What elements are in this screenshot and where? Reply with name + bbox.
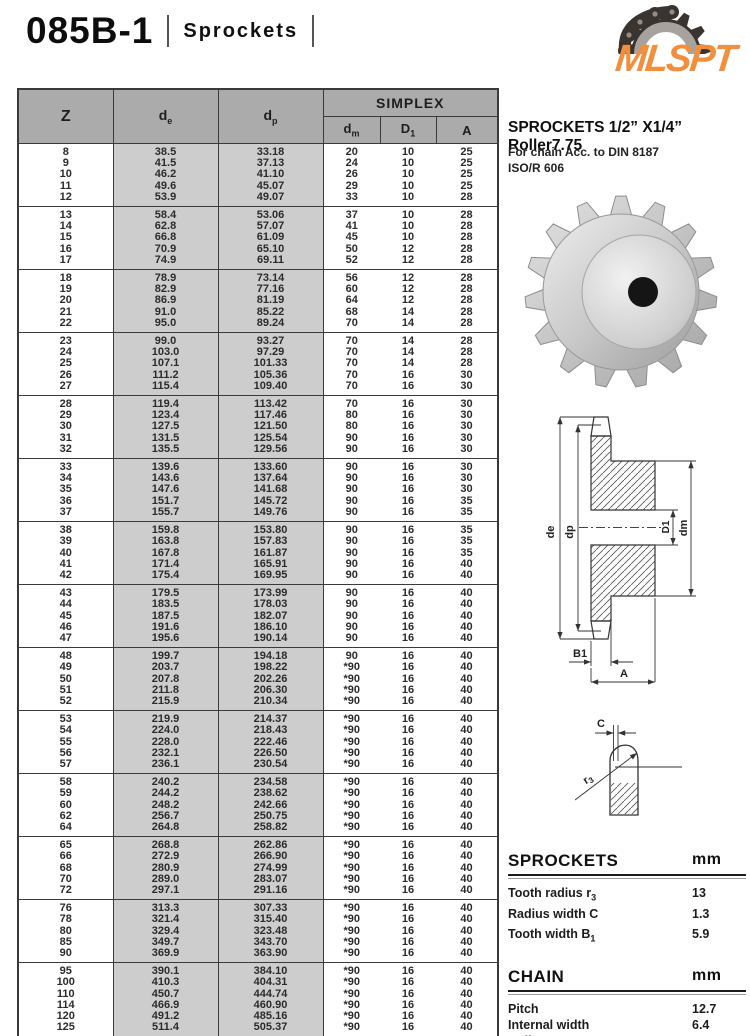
z-cell: 100: [18, 977, 113, 988]
de-cell: 410.3: [113, 977, 218, 988]
dp-cell: 194.18: [218, 648, 323, 663]
z-cell: 39: [18, 536, 113, 547]
d1-cell: 16: [380, 948, 436, 963]
d1-cell: 16: [380, 633, 436, 648]
dp-cell: 89.24: [218, 318, 323, 333]
dm-cell: 90: [323, 570, 380, 585]
a-cell: 28: [436, 192, 498, 207]
table-row: 2086.981.19641228: [18, 295, 498, 306]
table-row: 49203.7198.22*901640: [18, 662, 498, 673]
de-cell: 199.7: [113, 648, 218, 663]
d1-cell: 16: [380, 585, 436, 600]
dp-cell: 53.06: [218, 207, 323, 222]
dm-cell: *90: [323, 948, 380, 963]
z-cell: 125: [18, 1022, 113, 1036]
dm-cell: 90: [323, 444, 380, 459]
dm-cell: 20: [323, 144, 380, 159]
spec-section: SPROCKETS mm Tooth radius r3 13 Radius w…: [508, 851, 746, 1036]
dm-cell: 90: [323, 633, 380, 648]
spec-value: 6.4: [692, 1017, 746, 1033]
d1-cell: 16: [380, 507, 436, 522]
de-cell: 99.0: [113, 333, 218, 348]
d1-cell: 16: [380, 759, 436, 774]
dm-cell: *90: [323, 1022, 380, 1036]
dp-cell: 238.62: [218, 788, 323, 799]
spec-value: 5.9: [692, 926, 746, 947]
table-row: 42175.4169.95901640: [18, 570, 498, 585]
dm-cell: 90: [323, 484, 380, 495]
de-cell: 135.5: [113, 444, 218, 459]
table-row: 72297.1291.16*901640: [18, 885, 498, 900]
catalog-page: 085B-1 Sprockets MLSPT: [0, 0, 750, 1036]
sprocket-dimension-table: Z de dp SIMPLEX dm D1 A 838.533.18201025…: [17, 88, 499, 1036]
dm-cell: 90: [323, 522, 380, 537]
dp-cell: 266.90: [218, 851, 323, 862]
dm-cell: 70: [323, 318, 380, 333]
a-cell: 28: [436, 270, 498, 285]
dp-cell: 141.68: [218, 484, 323, 495]
d1-cell: 16: [380, 774, 436, 789]
de-cell: 86.9: [113, 295, 218, 306]
row-group: 33139.6133.6090163034143.6137.6490163035…: [18, 459, 498, 522]
a-cell: 40: [436, 788, 498, 799]
a-cell: 40: [436, 900, 498, 915]
d1-cell: 10: [380, 232, 436, 243]
dm-cell: 80: [323, 421, 380, 432]
dm-cell: 70: [323, 396, 380, 411]
spec-value: 12.7: [692, 1001, 746, 1017]
de-cell: 183.5: [113, 599, 218, 610]
dm-cell: *90: [323, 914, 380, 925]
d1-cell: 16: [380, 711, 436, 726]
d1-cell: 16: [380, 696, 436, 711]
dim-label-dp: dp: [564, 525, 576, 539]
table-row: 2295.089.24701428: [18, 318, 498, 333]
d1-cell: 14: [380, 358, 436, 369]
spec-value: 13: [692, 885, 746, 906]
a-cell: 30: [436, 484, 498, 495]
table-row: 76313.3307.33*901640: [18, 900, 498, 915]
row-group: 43179.5173.9990164044183.5178.0390164045…: [18, 585, 498, 648]
table-row: 2399.093.27701428: [18, 333, 498, 348]
dp-cell: 109.40: [218, 381, 323, 396]
dp-cell: 33.18: [218, 144, 323, 159]
z-cell: 10: [18, 169, 113, 180]
spec-heading: CHAIN: [508, 967, 692, 987]
dm-cell: *90: [323, 696, 380, 711]
d1-cell: 16: [380, 522, 436, 537]
dim-label-c: C: [597, 718, 605, 730]
table-row: 100410.3404.31*901640: [18, 977, 498, 988]
table-row: 38159.8153.80901635: [18, 522, 498, 537]
dm-cell: 52: [323, 255, 380, 270]
sprockets-spec: SPROCKETS mm Tooth radius r3 13 Radius w…: [508, 851, 746, 947]
z-cell: 37: [18, 507, 113, 522]
dm-cell: *90: [323, 774, 380, 789]
z-cell: 33: [18, 459, 113, 474]
table-row: 57236.1230.54*901640: [18, 759, 498, 774]
z-cell: 65: [18, 837, 113, 852]
z-cell: 47: [18, 633, 113, 648]
de-cell: 195.6: [113, 633, 218, 648]
de-cell: 163.8: [113, 536, 218, 547]
dm-cell: 90: [323, 599, 380, 610]
dp-cell: 198.22: [218, 662, 323, 673]
dp-cell: 61.09: [218, 232, 323, 243]
z-cell: 59: [18, 788, 113, 799]
rule-line: [508, 990, 746, 995]
dm-cell: *90: [323, 885, 380, 900]
dm-cell: 70: [323, 381, 380, 396]
dp-cell: 384.10: [218, 963, 323, 978]
page-subtitle: Sprockets: [183, 20, 298, 43]
de-cell: 215.9: [113, 696, 218, 711]
table-row: 30127.5121.50801630: [18, 421, 498, 432]
z-cell: 35: [18, 484, 113, 495]
divider: [312, 15, 314, 47]
z-cell: 53: [18, 711, 113, 726]
dm-cell: 64: [323, 295, 380, 306]
d1-cell: 16: [380, 914, 436, 925]
d1-cell: 16: [380, 648, 436, 663]
z-cell: 44: [18, 599, 113, 610]
z-cell: 32: [18, 444, 113, 459]
de-cell: 272.9: [113, 851, 218, 862]
d1-cell: 16: [380, 396, 436, 411]
a-cell: 35: [436, 536, 498, 547]
dm-cell: *90: [323, 977, 380, 988]
z-cell: 8: [18, 144, 113, 159]
table-row: 58240.2234.58*901640: [18, 774, 498, 789]
a-cell: 30: [436, 381, 498, 396]
z-cell: 57: [18, 759, 113, 774]
z-cell: 95: [18, 963, 113, 978]
table-row: 25107.1101.33701428: [18, 358, 498, 369]
dm-cell: *90: [323, 900, 380, 915]
table-row: 54224.0218.43*901640: [18, 725, 498, 736]
de-cell: 224.0: [113, 725, 218, 736]
table-row: 37155.7149.76901635: [18, 507, 498, 522]
a-cell: 40: [436, 963, 498, 978]
d1-cell: 12: [380, 255, 436, 270]
technical-drawing: de dp D1 dm B1 A: [533, 410, 748, 702]
dp-cell: 315.40: [218, 914, 323, 925]
page-header: 085B-1 Sprockets: [26, 10, 328, 52]
dm-cell: *90: [323, 851, 380, 862]
z-cell: 58: [18, 774, 113, 789]
de-cell: 53.9: [113, 192, 218, 207]
table-row: 27115.4109.40701630: [18, 381, 498, 396]
bore-hole: [628, 277, 658, 307]
a-cell: 40: [436, 774, 498, 789]
d1-cell: 16: [380, 977, 436, 988]
table-header: Z de dp SIMPLEX dm D1 A: [18, 89, 498, 144]
de-cell: 240.2: [113, 774, 218, 789]
de-cell: 139.6: [113, 459, 218, 474]
dp-cell: 133.60: [218, 459, 323, 474]
z-cell: 48: [18, 648, 113, 663]
a-cell: 30: [436, 421, 498, 432]
dm-cell: 56: [323, 270, 380, 285]
d1-cell: 16: [380, 599, 436, 610]
spec-heading: SPROCKETS: [508, 851, 692, 871]
de-cell: 115.4: [113, 381, 218, 396]
z-cell: 76: [18, 900, 113, 915]
d1-cell: 16: [380, 900, 436, 915]
spec-row: Pitch 12.7: [508, 1001, 746, 1017]
de-cell: 159.8: [113, 522, 218, 537]
divider: [167, 15, 169, 47]
sprocket-photo: [513, 190, 748, 398]
spec-value: 7.75: [692, 1033, 746, 1036]
spec-value: 1.3: [692, 906, 746, 927]
table-row: 1046.241.10261025: [18, 169, 498, 180]
a-cell: 40: [436, 633, 498, 648]
d1-cell: 16: [380, 1022, 436, 1036]
de-cell: 147.6: [113, 484, 218, 495]
table-row: 48199.7194.18901640: [18, 648, 498, 663]
d1-cell: 16: [380, 837, 436, 852]
de-cell: 155.7: [113, 507, 218, 522]
row-group: 38159.8153.8090163539163.8157.8390163540…: [18, 522, 498, 585]
dp-cell: 258.82: [218, 822, 323, 837]
spec-row: Tooth width B1 5.9: [508, 926, 746, 947]
de-cell: 313.3: [113, 900, 218, 915]
a-cell: 40: [436, 851, 498, 862]
z-cell: 18: [18, 270, 113, 285]
dp-cell: 307.33: [218, 900, 323, 915]
a-cell: 40: [436, 585, 498, 600]
d1-cell: 12: [380, 295, 436, 306]
d1-cell: 16: [380, 536, 436, 547]
z-cell: 52: [18, 696, 113, 711]
tooth-profile-drawing: C r3: [575, 703, 725, 845]
a-cell: 40: [436, 662, 498, 673]
d1-cell: 16: [380, 963, 436, 978]
z-cell: 22: [18, 318, 113, 333]
table-row: 44183.5178.03901640: [18, 599, 498, 610]
dm-cell: 70: [323, 358, 380, 369]
col-header-z: Z: [18, 89, 113, 144]
de-cell: 203.7: [113, 662, 218, 673]
chain-spec-header: CHAIN mm: [508, 967, 746, 987]
a-cell: 40: [436, 914, 498, 925]
z-cell: 43: [18, 585, 113, 600]
dp-cell: 190.14: [218, 633, 323, 648]
dp-cell: 153.80: [218, 522, 323, 537]
dp-cell: 214.37: [218, 711, 323, 726]
dm-cell: 45: [323, 232, 380, 243]
dm-cell: *90: [323, 725, 380, 736]
d1-cell: 10: [380, 192, 436, 207]
table-row: 1358.453.06371028: [18, 207, 498, 222]
dp-cell: 129.56: [218, 444, 323, 459]
de-cell: 219.9: [113, 711, 218, 726]
table-row: 125511.4505.37*901640: [18, 1022, 498, 1036]
dm-cell: *90: [323, 822, 380, 837]
a-cell: 40: [436, 977, 498, 988]
table-row: 90369.9363.90*901640: [18, 948, 498, 963]
spec-row: Roller Φ 7.75: [508, 1033, 746, 1036]
dp-cell: 93.27: [218, 333, 323, 348]
dp-cell: 41.10: [218, 169, 323, 180]
row-group: 1358.453.063710281462.857.074110281566.8…: [18, 207, 498, 270]
a-cell: 28: [436, 207, 498, 222]
d1-cell: 16: [380, 725, 436, 736]
spec-unit: mm: [692, 851, 746, 871]
table-row: 47195.6190.14901640: [18, 633, 498, 648]
dp-cell: 173.99: [218, 585, 323, 600]
dim-label-b1: B1: [573, 648, 587, 660]
dp-cell: 363.90: [218, 948, 323, 963]
row-group: 58240.2234.58*90164059244.2238.62*901640…: [18, 774, 498, 837]
table-row: 32135.5129.56901630: [18, 444, 498, 459]
de-cell: 264.8: [113, 822, 218, 837]
page-title: 085B-1: [26, 10, 153, 52]
d1-cell: 16: [380, 459, 436, 474]
a-cell: 25: [436, 144, 498, 159]
z-cell: 54: [18, 725, 113, 736]
dm-cell: 70: [323, 333, 380, 348]
d1-cell: 16: [380, 570, 436, 585]
z-cell: 30: [18, 421, 113, 432]
d1-cell: 16: [380, 788, 436, 799]
a-cell: 40: [436, 1022, 498, 1036]
de-cell: 127.5: [113, 421, 218, 432]
a-cell: 40: [436, 648, 498, 663]
table-row: 1566.861.09451028: [18, 232, 498, 243]
dp-cell: 101.33: [218, 358, 323, 369]
de-cell: 58.4: [113, 207, 218, 222]
col-header-dm: dm: [323, 117, 380, 144]
a-cell: 40: [436, 599, 498, 610]
de-cell: 268.8: [113, 837, 218, 852]
de-cell: 244.2: [113, 788, 218, 799]
a-cell: 28: [436, 232, 498, 243]
de-cell: 74.9: [113, 255, 218, 270]
d1-cell: 16: [380, 381, 436, 396]
a-cell: 40: [436, 570, 498, 585]
z-cell: 28: [18, 396, 113, 411]
spec-row: Radius width C 1.3: [508, 906, 746, 927]
row-group: 838.533.18201025941.537.132410251046.241…: [18, 144, 498, 207]
dim-label-a: A: [620, 668, 628, 680]
z-cell: 25: [18, 358, 113, 369]
row-group: 2399.093.2770142824103.097.2970142825107…: [18, 333, 498, 396]
table-row: 39163.8157.83901635: [18, 536, 498, 547]
dp-cell: 113.42: [218, 396, 323, 411]
dm-cell: *90: [323, 711, 380, 726]
de-cell: 236.1: [113, 759, 218, 774]
a-cell: 25: [436, 169, 498, 180]
product-iso: ISO/R 606: [508, 161, 564, 175]
dm-cell: *90: [323, 837, 380, 852]
dm-cell: *90: [323, 788, 380, 799]
rule-line: [508, 874, 746, 879]
brand-logo: MLSPT: [604, 2, 746, 84]
z-cell: 64: [18, 822, 113, 837]
d1-cell: 12: [380, 270, 436, 285]
dp-cell: 230.54: [218, 759, 323, 774]
de-cell: 95.0: [113, 318, 218, 333]
de-cell: 297.1: [113, 885, 218, 900]
dp-cell: 169.95: [218, 570, 323, 585]
product-standard: For chain Acc. to DIN 8187: [508, 145, 659, 159]
dp-cell: 404.31: [218, 977, 323, 988]
de-cell: 321.4: [113, 914, 218, 925]
row-group: 76313.3307.33*90164078321.4315.40*901640…: [18, 900, 498, 963]
de-cell: 179.5: [113, 585, 218, 600]
dp-cell: 234.58: [218, 774, 323, 789]
a-cell: 35: [436, 507, 498, 522]
a-cell: 28: [436, 358, 498, 369]
z-cell: 72: [18, 885, 113, 900]
row-group: 28119.4113.4270163029123.4117.4680163030…: [18, 396, 498, 459]
dm-cell: 90: [323, 507, 380, 522]
a-cell: 40: [436, 885, 498, 900]
de-cell: 38.5: [113, 144, 218, 159]
a-cell: 40: [436, 696, 498, 711]
dm-cell: 37: [323, 207, 380, 222]
col-header-dp: dp: [218, 89, 323, 144]
chain-spec: CHAIN mm Pitch 12.7 Internal width 6.4 R…: [508, 967, 746, 1036]
table-row: 65268.8262.86*901640: [18, 837, 498, 852]
de-cell: 78.9: [113, 270, 218, 285]
table-row: 43179.5173.99901640: [18, 585, 498, 600]
dp-cell: 505.37: [218, 1022, 323, 1036]
dm-cell: *90: [323, 662, 380, 673]
z-cell: 90: [18, 948, 113, 963]
dp-cell: 291.16: [218, 885, 323, 900]
table-row: 64264.8258.82*901640: [18, 822, 498, 837]
a-cell: 40: [436, 725, 498, 736]
z-cell: 42: [18, 570, 113, 585]
a-cell: 40: [436, 759, 498, 774]
d1-cell: 16: [380, 444, 436, 459]
dp-cell: 121.50: [218, 421, 323, 432]
row-group: 65268.8262.86*90164066272.9266.90*901640…: [18, 837, 498, 900]
z-cell: 27: [18, 381, 113, 396]
de-cell: 369.9: [113, 948, 218, 963]
de-cell: 66.8: [113, 232, 218, 243]
dm-cell: 90: [323, 459, 380, 474]
dm-cell: 33: [323, 192, 380, 207]
d1-cell: 16: [380, 885, 436, 900]
d1-cell: 16: [380, 484, 436, 495]
dp-cell: 262.86: [218, 837, 323, 852]
a-cell: 40: [436, 948, 498, 963]
de-cell: 119.4: [113, 396, 218, 411]
dp-cell: 69.11: [218, 255, 323, 270]
z-cell: 78: [18, 914, 113, 925]
table-row: 838.533.18201025: [18, 144, 498, 159]
dm-cell: 90: [323, 585, 380, 600]
z-cell: 38: [18, 522, 113, 537]
table-row: 95390.1384.10*901640: [18, 963, 498, 978]
z-cell: 17: [18, 255, 113, 270]
a-cell: 30: [436, 459, 498, 474]
z-cell: 20: [18, 295, 113, 306]
de-cell: 511.4: [113, 1022, 218, 1036]
dm-cell: 26: [323, 169, 380, 180]
table-row: 35147.6141.68901630: [18, 484, 498, 495]
a-cell: 40: [436, 837, 498, 852]
a-cell: 35: [436, 522, 498, 537]
d1-cell: 10: [380, 169, 436, 180]
col-header-simplex: SIMPLEX: [323, 89, 498, 117]
d1-cell: 16: [380, 421, 436, 432]
brand-name: MLSPT: [602, 38, 749, 81]
